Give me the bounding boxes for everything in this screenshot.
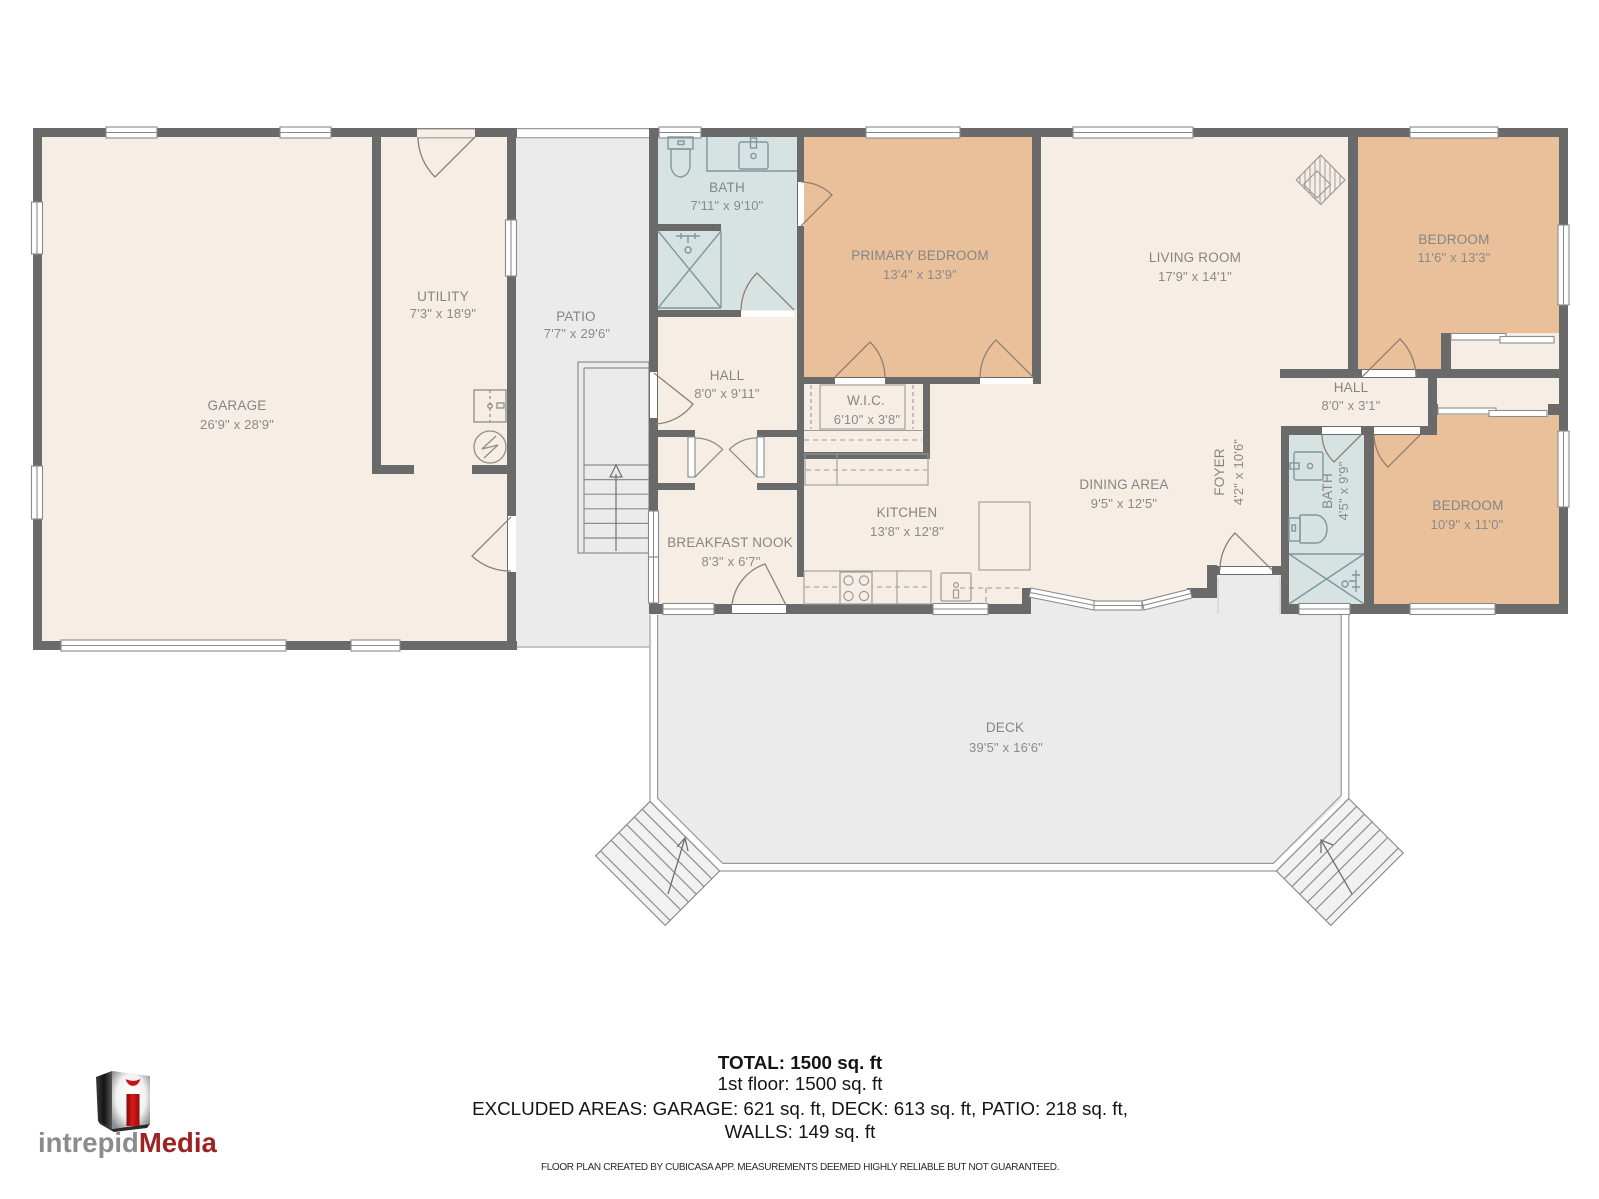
- svg-text:DECK: DECK: [986, 720, 1024, 735]
- svg-text:DINING AREA: DINING AREA: [1079, 477, 1168, 492]
- svg-text:BATH: BATH: [1320, 473, 1335, 509]
- svg-text:13'4" x 13'9": 13'4" x 13'9": [883, 267, 957, 282]
- svg-text:intrepidMedia: intrepidMedia: [38, 1127, 217, 1158]
- svg-text:UTILITY: UTILITY: [417, 289, 469, 304]
- svg-text:1st floor: 1500 sq. ft: 1st floor: 1500 sq. ft: [718, 1073, 884, 1094]
- svg-text:BREAKFAST NOOK: BREAKFAST NOOK: [667, 535, 793, 550]
- svg-text:TOTAL: 1500 sq. ft: TOTAL: 1500 sq. ft: [718, 1052, 883, 1073]
- svg-text:BEDROOM: BEDROOM: [1418, 232, 1489, 247]
- svg-text:10'9" x 11'0": 10'9" x 11'0": [1431, 517, 1504, 532]
- svg-text:17'9" x 14'1": 17'9" x 14'1": [1158, 269, 1232, 284]
- svg-text:8'0" x 9'11": 8'0" x 9'11": [694, 386, 760, 401]
- svg-text:W.I.C.: W.I.C.: [847, 393, 885, 408]
- svg-text:BEDROOM: BEDROOM: [1432, 498, 1503, 513]
- svg-text:BATH: BATH: [709, 180, 745, 195]
- svg-text:4'5" x 9'9": 4'5" x 9'9": [1336, 461, 1351, 520]
- svg-text:4'2" x 10'6": 4'2" x 10'6": [1231, 439, 1246, 506]
- svg-text:7'11" x 9'10": 7'11" x 9'10": [691, 198, 764, 213]
- svg-text:13'8" x 12'8": 13'8" x 12'8": [870, 524, 944, 539]
- svg-text:LIVING ROOM: LIVING ROOM: [1149, 250, 1241, 265]
- svg-text:26'9" x 28'9": 26'9" x 28'9": [200, 417, 274, 432]
- svg-text:KITCHEN: KITCHEN: [877, 505, 938, 520]
- svg-text:9'5" x 12'5": 9'5" x 12'5": [1091, 496, 1158, 511]
- svg-text:HALL: HALL: [710, 368, 745, 383]
- svg-text:8'3" x 6'7": 8'3" x 6'7": [701, 554, 760, 569]
- svg-text:PATIO: PATIO: [556, 309, 596, 324]
- svg-text:39'5" x 16'6": 39'5" x 16'6": [969, 740, 1043, 755]
- svg-text:11'6" x 13'3": 11'6" x 13'3": [1418, 250, 1491, 265]
- svg-text:6'10" x 3'8": 6'10" x 3'8": [834, 412, 901, 427]
- svg-text:PRIMARY BEDROOM: PRIMARY BEDROOM: [851, 248, 989, 263]
- svg-text:FOYER: FOYER: [1212, 448, 1227, 496]
- svg-text:WALLS: 149 sq. ft: WALLS: 149 sq. ft: [725, 1121, 876, 1142]
- svg-text:8'0" x 3'1": 8'0" x 3'1": [1321, 398, 1380, 413]
- svg-text:HALL: HALL: [1334, 380, 1369, 395]
- svg-text:FLOOR PLAN CREATED BY CUBICASA: FLOOR PLAN CREATED BY CUBICASA APP. MEAS…: [541, 1162, 1059, 1173]
- svg-text:EXCLUDED AREAS: GARAGE: 621 sq: EXCLUDED AREAS: GARAGE: 621 sq. ft, DECK…: [472, 1098, 1128, 1119]
- svg-text:7'3" x 18'9": 7'3" x 18'9": [410, 306, 477, 321]
- svg-text:GARAGE: GARAGE: [208, 398, 267, 413]
- svg-text:7'7" x 29'6": 7'7" x 29'6": [544, 326, 611, 341]
